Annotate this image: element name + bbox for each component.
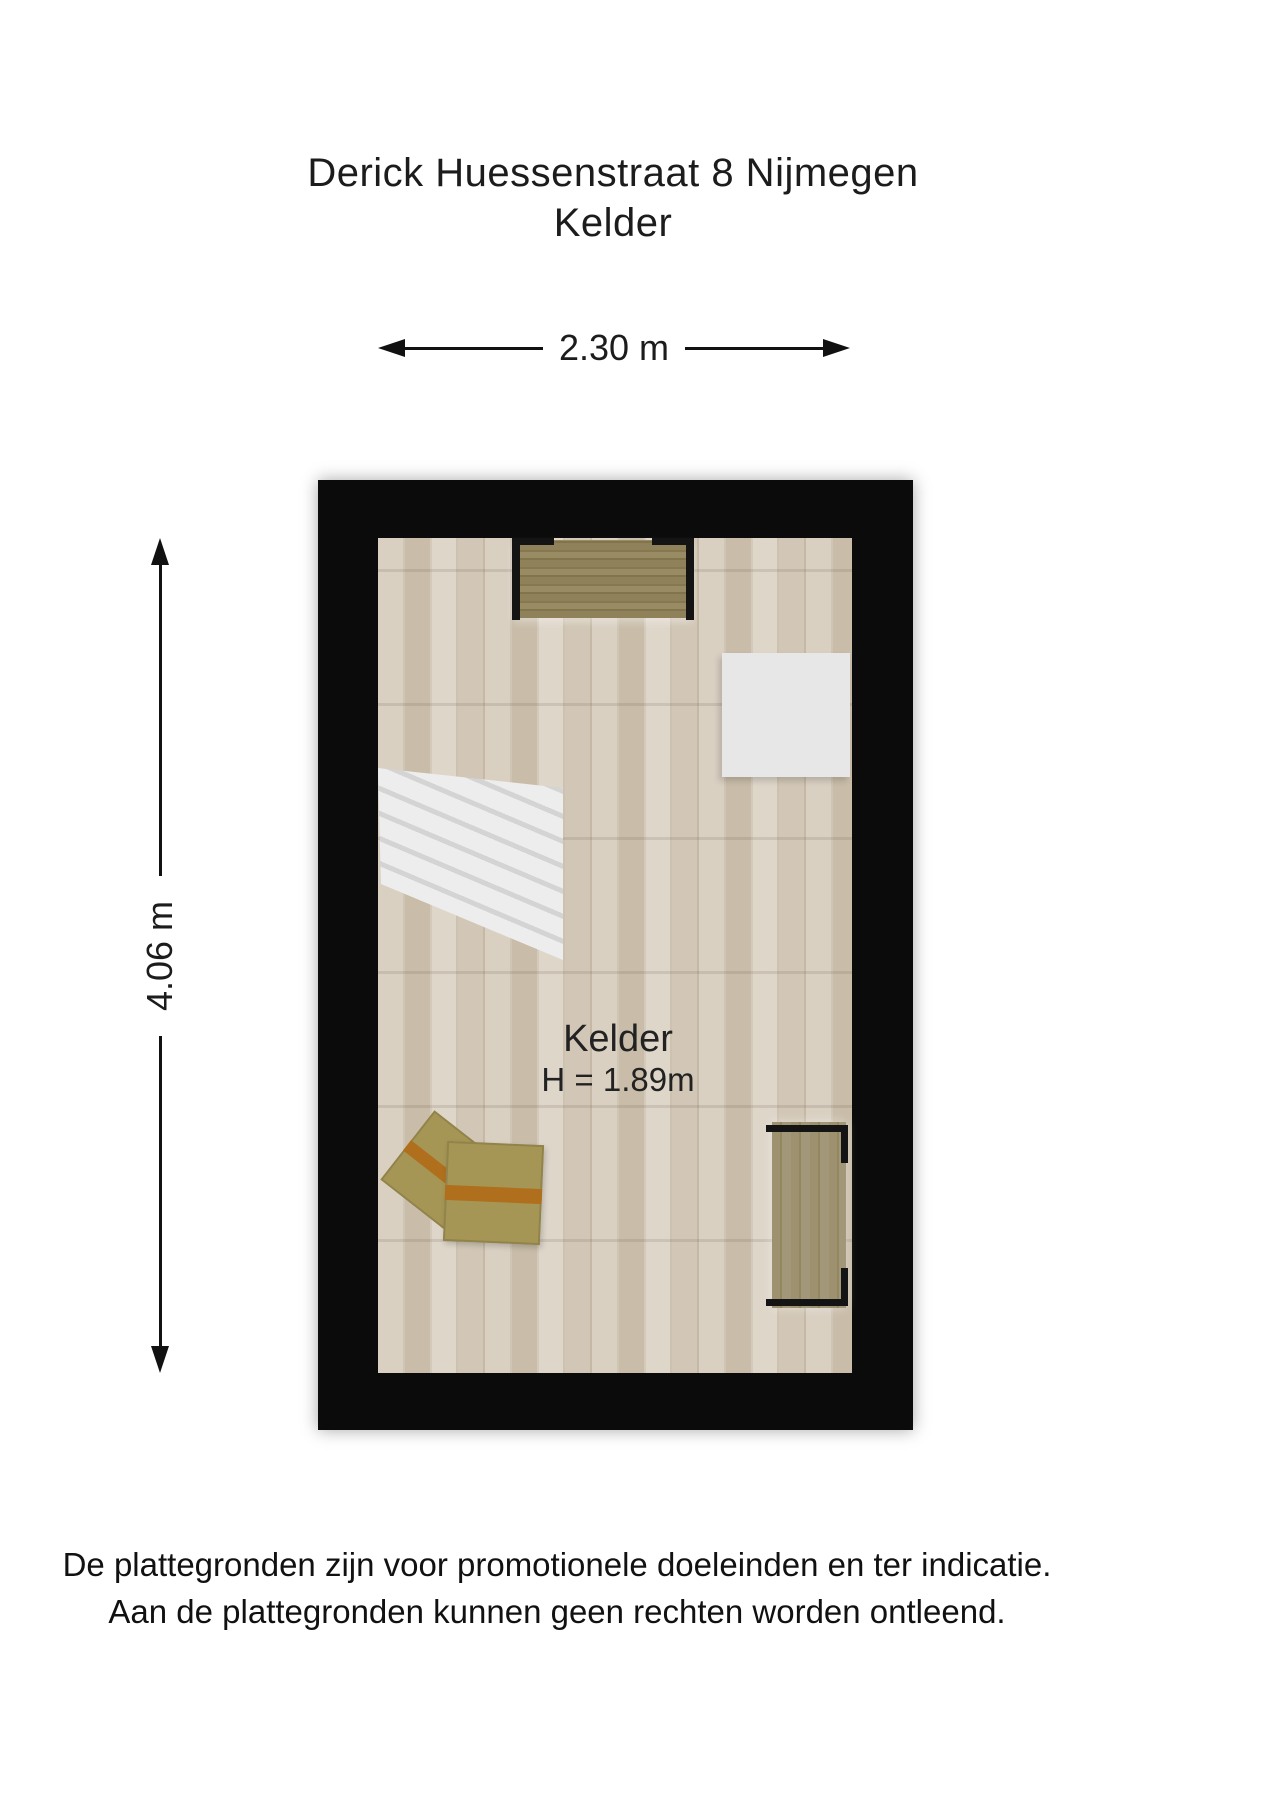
room-ceiling-height-label: H = 1.89m: [378, 1060, 858, 1100]
height-dimension-label: 4.06 m: [139, 900, 181, 1010]
arrowhead-up-icon: [151, 538, 169, 565]
workbench-bracket-right-icon: [652, 538, 694, 620]
staircase: [378, 768, 563, 960]
floorplan-walls: Kelder H = 1.89m: [318, 480, 913, 1430]
dimension-line-right: [685, 347, 823, 350]
disclaimer: De plattegronden zijn voor promotionele …: [0, 1541, 1114, 1635]
title-address: Derick Huessenstraat 8 Nijmegen: [0, 148, 1226, 198]
width-dimension: 2.30 m: [378, 326, 850, 370]
page-title: Derick Huessenstraat 8 Nijmegen Kelder: [0, 148, 1226, 248]
height-dimension-label-wrap: 4.06 m: [105, 876, 215, 1036]
arrowhead-down-icon: [151, 1346, 169, 1373]
closet-frame-top-icon: [766, 1125, 848, 1163]
arrowhead-right-icon: [823, 339, 850, 357]
dimension-line-top: [159, 565, 162, 876]
width-dimension-label: 2.30 m: [543, 327, 685, 369]
closet-frame-bottom-icon: [766, 1268, 848, 1306]
dimension-line-left: [405, 347, 543, 350]
title-floor-name: Kelder: [0, 198, 1226, 248]
room-label: Kelder H = 1.89m: [378, 1018, 858, 1100]
moving-box-top: [443, 1141, 544, 1245]
disclaimer-line1: De plattegronden zijn voor promotionele …: [0, 1541, 1114, 1588]
disclaimer-line2: Aan de plattegronden kunnen geen rechten…: [0, 1588, 1114, 1635]
box-tape-icon: [445, 1185, 543, 1204]
floorplan-page: Derick Huessenstraat 8 Nijmegen Kelder 2…: [0, 0, 1280, 1810]
workbench-bracket-left-icon: [512, 538, 554, 620]
room-name-label: Kelder: [378, 1018, 858, 1060]
height-dimension: 4.06 m: [133, 538, 187, 1373]
arrowhead-left-icon: [378, 339, 405, 357]
white-panel: [722, 653, 850, 777]
dimension-line-bottom: [159, 1036, 162, 1347]
room-floor: Kelder H = 1.89m: [378, 538, 852, 1373]
